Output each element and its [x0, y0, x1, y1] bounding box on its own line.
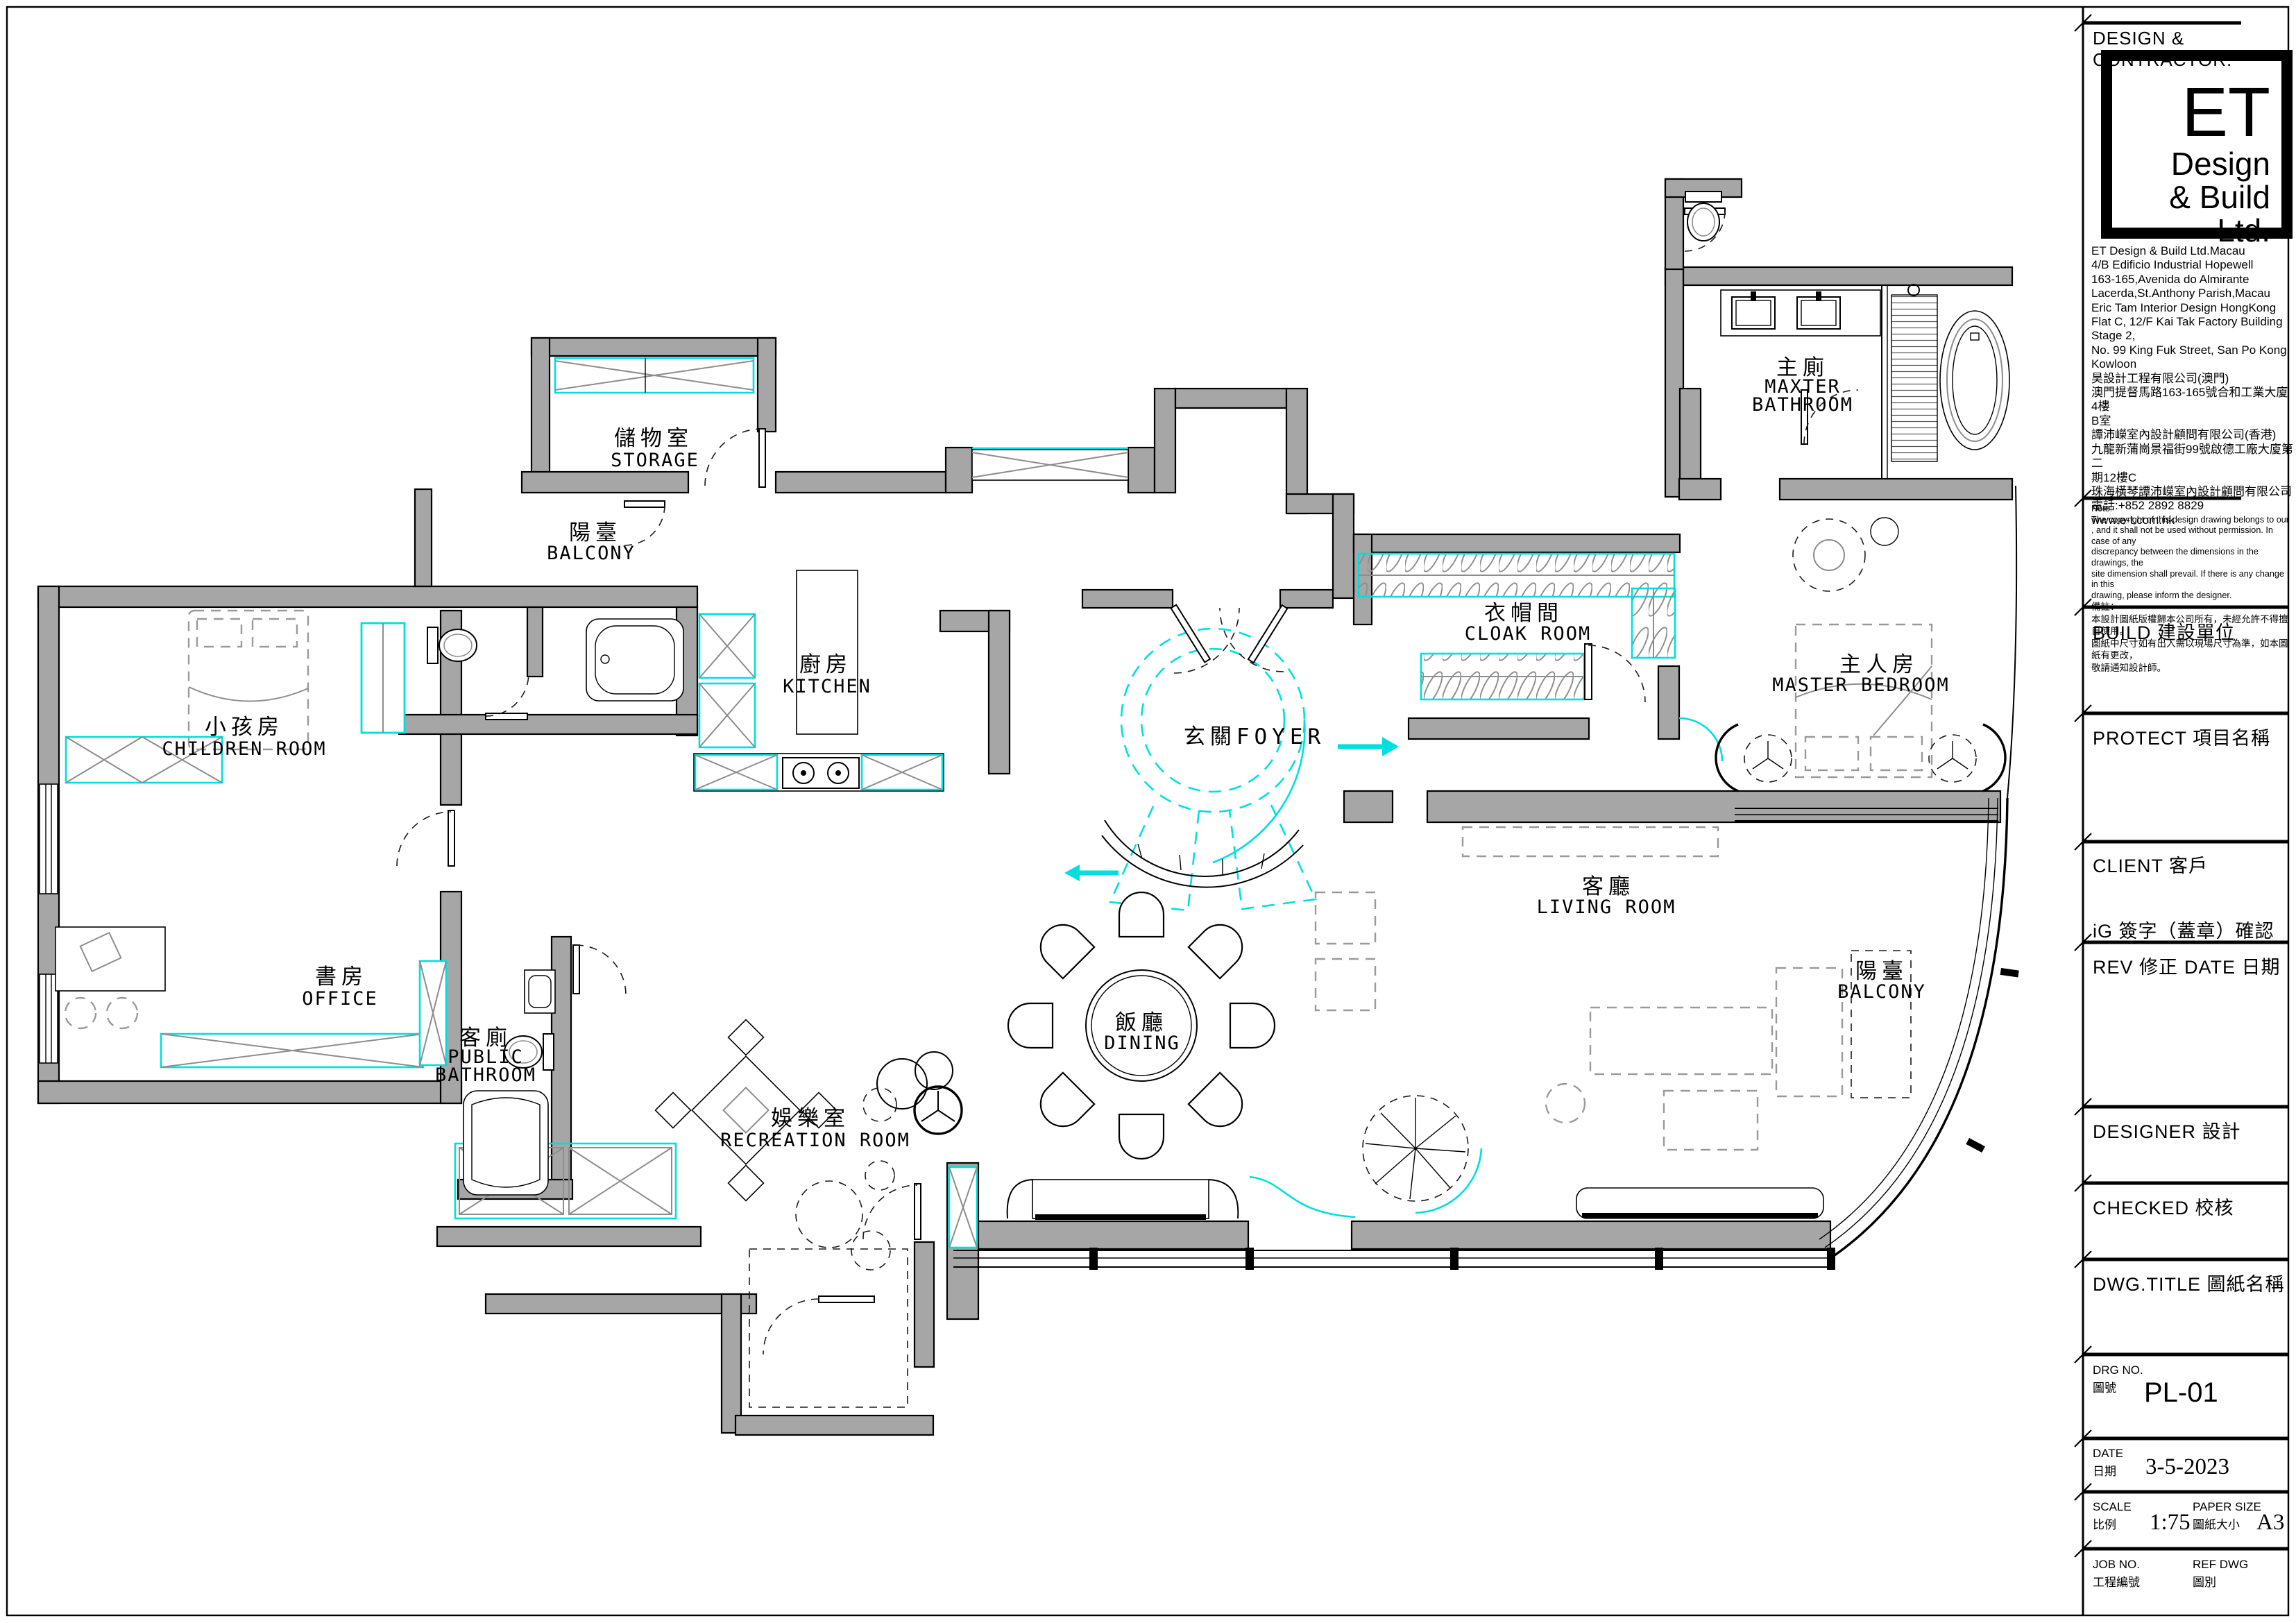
field-ig: iG 簽字（蓋章）確認 — [2093, 916, 2274, 943]
scale-label: SCALE 比例 — [2093, 1498, 2132, 1534]
address-line: Flat C, 12/F Kai Tak Factory Building — [2091, 315, 2294, 329]
note-line-zh: 敬請通知設計師。 — [2091, 662, 2293, 674]
paper-size-value: A3 — [2256, 1510, 2284, 1536]
walls — [38, 179, 2012, 1435]
door-entrance-left — [1171, 605, 1239, 673]
label-master-bed-zh: 主人房 — [1839, 652, 1919, 677]
plant-arc — [1415, 1148, 1481, 1213]
address-line: 期12樓C — [2091, 471, 2294, 485]
address-line: B室 — [2091, 414, 2294, 428]
south-benches — [1007, 1180, 1823, 1220]
curved-facade — [1819, 486, 2019, 1257]
address-line: 九龍新蒲崗景福街99號啟德工廠大廈第二 — [2091, 443, 2294, 471]
door-rec-bay — [763, 1296, 874, 1354]
note-line-en: drawing, please inform the designer. — [2091, 590, 2293, 602]
cloak-wardrobe-bottom — [1421, 654, 1584, 699]
note-line-en: , and it shall not be used without permi… — [2091, 525, 2293, 547]
field-rev: REV 修正 — [2093, 952, 2178, 979]
cloak-wardrobe-right — [1632, 588, 1675, 658]
field-client: CLIENT 客戶 — [2093, 851, 2208, 878]
office-cabinet-tall — [420, 961, 446, 1065]
bedside-left — [1716, 724, 1792, 791]
office-desk — [56, 927, 165, 1028]
label-balcony-right-zh: 陽臺 — [1855, 959, 1908, 984]
door-public-bath — [573, 945, 626, 995]
label-office-zh: 書房 — [315, 965, 368, 989]
date-label: DATE 日期 — [2093, 1445, 2123, 1481]
note-line-zh: 備註： — [2091, 601, 2293, 613]
window-left-wall-1 — [40, 784, 58, 894]
window-south-band — [953, 1248, 1835, 1270]
label-master-bath-en2: BATHROOM — [1752, 394, 1853, 416]
logo-line-build: & Build Ltd. — [2116, 180, 2270, 247]
address-line: No. 99 King Fuk Street, San Po Kong, — [2091, 343, 2294, 357]
foyer-arrow — [1338, 737, 1399, 756]
master-bed — [1796, 624, 1932, 777]
address-line: 4/B Edificio Industrial Hopewell — [2091, 258, 2294, 272]
ref-dwg-label: REF DWG 圖別 — [2193, 1556, 2248, 1592]
address-line: Stage 2, — [2091, 329, 2294, 343]
kitchen-counter — [694, 754, 944, 791]
label-dining-zh: 飯廳 — [1115, 1010, 1168, 1035]
window-hall-top — [972, 448, 1128, 480]
field-protect: PROTECT 項目名稱 — [2093, 723, 2270, 750]
label-balcony-right-en: BALCONY — [1837, 981, 1926, 1003]
note-line-en: site dimension shall prevail. If there i… — [2091, 569, 2293, 590]
address-line: 譚沛嶸室內設計顧問有限公司(香港) — [2091, 428, 2294, 442]
label-recreation-en: RECREATION ROOM — [720, 1130, 910, 1151]
cloak-wardrobe-top — [1359, 554, 1674, 597]
field-build: BUILD 建設單位 — [2093, 618, 2235, 645]
address-line: 珠海橫琴譚沛嶸室內設計顧問有限公司 — [2091, 485, 2294, 499]
bathtub-public — [464, 1091, 548, 1195]
label-children-zh: 小孩房 — [205, 715, 284, 740]
field-checked: CHECKED 校核 — [2093, 1193, 2234, 1220]
label-living-zh: 客廳 — [1582, 874, 1635, 899]
bedside-right — [1929, 724, 2005, 791]
job-no-label: JOB NO. 工程編號 — [2093, 1556, 2140, 1592]
toilet-children-bath — [427, 627, 477, 663]
address-line: 昊設計工程有限公司(澳門) — [2091, 372, 2294, 386]
note-line-en: discrepancy between the dimensions in th… — [2091, 547, 2293, 568]
logo-line-design: Design — [2116, 147, 2270, 180]
bathtub-master — [1940, 311, 2009, 450]
window-left-wall-2 — [40, 974, 58, 1063]
paper-size-label: PAPER SIZE 圖紙大小 — [2193, 1498, 2261, 1534]
sink-public-bath — [525, 970, 555, 1013]
entry-column-panel — [949, 1167, 977, 1248]
date-value: 3-5-2023 — [2145, 1454, 2229, 1480]
drg-no-label: DRG NO. 圖號 — [2093, 1361, 2143, 1397]
logo-line-et: ET — [2116, 78, 2270, 147]
bathtub-children — [586, 619, 683, 701]
furniture — [56, 518, 2005, 1407]
feature-s-curve — [1250, 1177, 1355, 1217]
door-children — [397, 810, 454, 866]
company-logo: ET Design & Build Ltd. — [2101, 50, 2293, 239]
office-cabinet-long — [161, 1034, 423, 1067]
hall-arrow — [1064, 865, 1119, 881]
bedroom-chair — [1793, 518, 1898, 591]
label-office-en: OFFICE — [302, 988, 378, 1010]
field-designer: DESIGNER 設計 — [2093, 1116, 2241, 1144]
children-wardrobe — [362, 623, 405, 733]
address-line: Kowloon — [2091, 357, 2294, 371]
label-cloak-en: CLOAK ROOM — [1465, 623, 1592, 645]
label-master-bed-en: MASTER BEDROOM — [1772, 674, 1950, 696]
field-dwg-title: DWG.TITLE 圖紙名稱 — [2093, 1269, 2285, 1296]
kitchen-side-cabinet — [699, 614, 755, 747]
address-line: 163-165,Avenida do Almirante — [2091, 273, 2294, 287]
toilet-wc — [1685, 192, 1721, 241]
recreation-platform — [749, 1249, 908, 1407]
label-dining-en: DINING — [1104, 1033, 1180, 1054]
label-children-en: CHILDREN ROOM — [162, 738, 326, 760]
shower — [1882, 284, 1937, 479]
foyer-feature — [1102, 629, 1316, 910]
label-balcony-left-zh: 陽臺 — [569, 520, 622, 545]
company-address: ET Design & Build Ltd.Macau4/B Edificio … — [2091, 244, 2294, 527]
address-line: 澳門提督馬路163-165號合和工業大廈4樓 — [2091, 386, 2294, 414]
scale-value: 1:75 — [2150, 1510, 2191, 1536]
door-storage — [705, 429, 765, 487]
drg-no-value: PL-01 — [2144, 1377, 2218, 1409]
recreation-plants — [796, 1052, 962, 1270]
label-living-en: LIVING ROOM — [1537, 897, 1676, 918]
door-entrance-right — [1220, 605, 1287, 672]
windows — [40, 448, 2019, 1270]
label-kitchen-en: KITCHEN — [783, 676, 871, 697]
field-rev-date: DATE 日期 — [2184, 952, 2281, 979]
label-storage-en: STORAGE — [611, 450, 699, 471]
living-plant — [1363, 1096, 1468, 1201]
label-cloak-zh: 衣帽間 — [1484, 601, 1563, 626]
door-balcony-left — [624, 501, 665, 545]
address-line: Eric Tam Interior Design HongKong — [2091, 301, 2294, 315]
master-bath-sinks — [1721, 290, 1880, 336]
copyright-note: Note:The copyright of this design drawin… — [2091, 504, 2293, 674]
label-public-bath-en2: BATHROOM — [435, 1064, 536, 1086]
floor-plan-canvas: 儲物室 STORAGE 陽臺 BALCONY 小孩房 CHILDREN ROOM… — [0, 0, 2296, 1623]
living-set — [1316, 827, 1842, 1150]
label-foyer: 玄關FOYER — [1184, 724, 1325, 749]
label-recreation-zh: 娛樂室 — [771, 1106, 850, 1131]
label-storage-zh: 儲物室 — [614, 426, 693, 451]
address-line: Lacerda,St.Anthony Parish,Macau — [2091, 287, 2294, 300]
note-line-en: The copyright of this design drawing bel… — [2091, 515, 2293, 526]
address-line: ET Design & Build Ltd.Macau — [2091, 244, 2294, 258]
door-bath-block — [486, 673, 529, 720]
label-balcony-left-en: BALCONY — [547, 543, 636, 564]
note-line-en: Note: — [2091, 504, 2293, 515]
door-recreation — [863, 1184, 921, 1239]
label-kitchen-zh: 廚房 — [799, 652, 852, 677]
storage-shelf — [555, 358, 754, 393]
